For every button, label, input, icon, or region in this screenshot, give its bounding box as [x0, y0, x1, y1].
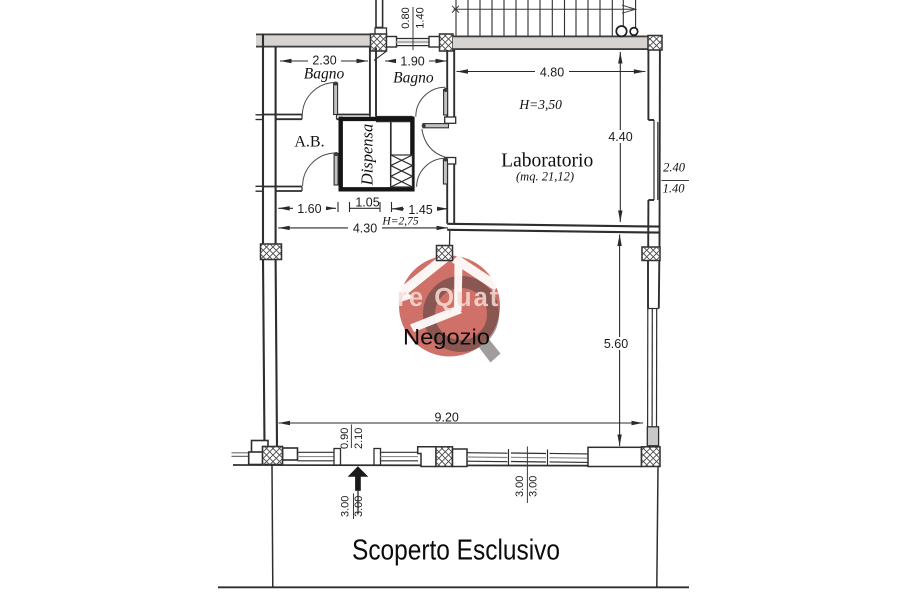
- svg-text:2.10: 2.10: [353, 428, 365, 449]
- svg-text:4.40: 4.40: [608, 130, 632, 144]
- svg-text:Bagno: Bagno: [304, 66, 345, 83]
- svg-text:2.40: 2.40: [663, 161, 686, 175]
- svg-text:(mq. 21,12): (mq. 21,12): [516, 170, 574, 184]
- svg-text:Negozio: Negozio: [403, 325, 490, 350]
- svg-text:Dispensa: Dispensa: [358, 124, 377, 186]
- svg-text:5.60: 5.60: [604, 337, 628, 351]
- svg-text:re Quat: re Quat: [397, 284, 500, 312]
- svg-text:H=2,75: H=2,75: [381, 216, 418, 228]
- svg-text:0.80: 0.80: [400, 7, 412, 28]
- svg-text:Laboratorio: Laboratorio: [501, 151, 593, 172]
- svg-text:1.40: 1.40: [663, 182, 686, 196]
- svg-text:3.00: 3.00: [353, 496, 365, 517]
- svg-text:3.00: 3.00: [514, 476, 526, 497]
- svg-text:Scoperto Esclusivo: Scoperto Esclusivo: [352, 535, 560, 567]
- svg-text:H=3,50: H=3,50: [518, 97, 562, 112]
- svg-text:9.20: 9.20: [435, 411, 459, 425]
- svg-text:Bagno: Bagno: [393, 70, 434, 87]
- svg-text:A.B.: A.B.: [294, 134, 324, 151]
- svg-text:3.00: 3.00: [528, 476, 540, 497]
- svg-text:1.60: 1.60: [297, 202, 321, 216]
- svg-text:1.40: 1.40: [415, 7, 427, 28]
- svg-text:4.80: 4.80: [540, 66, 564, 80]
- svg-text:1.05: 1.05: [355, 195, 379, 209]
- svg-text:4.30: 4.30: [353, 222, 377, 236]
- svg-text:0.90: 0.90: [339, 428, 351, 449]
- svg-text:3.00: 3.00: [340, 496, 352, 517]
- svg-text:1.90: 1.90: [400, 55, 424, 69]
